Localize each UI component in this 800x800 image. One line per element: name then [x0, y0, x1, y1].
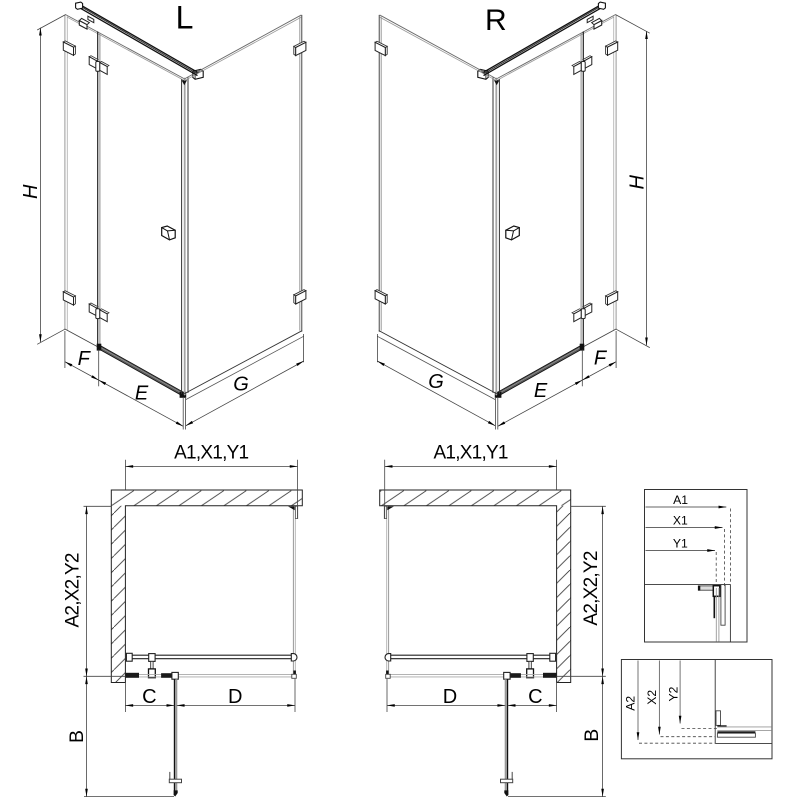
svg-text:C: C — [142, 686, 156, 708]
svg-text:R: R — [485, 4, 507, 37]
svg-text:Y1: Y1 — [673, 536, 688, 550]
svg-text:H: H — [627, 175, 649, 190]
svg-text:Y2: Y2 — [667, 686, 681, 701]
svg-text:E: E — [534, 380, 548, 402]
svg-text:F: F — [594, 348, 608, 370]
svg-text:G: G — [233, 374, 249, 396]
svg-text:E: E — [135, 383, 149, 405]
svg-text:A2,X2,Y2: A2,X2,Y2 — [63, 553, 84, 628]
svg-text:B: B — [581, 729, 603, 742]
svg-text:D: D — [443, 686, 457, 708]
svg-text:F: F — [78, 348, 92, 370]
svg-text:G: G — [428, 371, 444, 393]
svg-text:D: D — [228, 686, 242, 708]
svg-text:A1: A1 — [673, 493, 688, 507]
svg-text:A2,X2,Y2: A2,X2,Y2 — [581, 551, 602, 626]
svg-text:C: C — [528, 686, 542, 708]
svg-text:L: L — [176, 0, 194, 36]
svg-text:X1: X1 — [673, 513, 688, 527]
svg-text:H: H — [20, 184, 42, 199]
svg-text:A1,X1,Y1: A1,X1,Y1 — [434, 442, 509, 463]
svg-text:B: B — [66, 730, 88, 743]
svg-text:A1,X1,Y1: A1,X1,Y1 — [174, 442, 249, 463]
svg-text:A2: A2 — [624, 696, 638, 711]
svg-text:X2: X2 — [645, 690, 659, 705]
